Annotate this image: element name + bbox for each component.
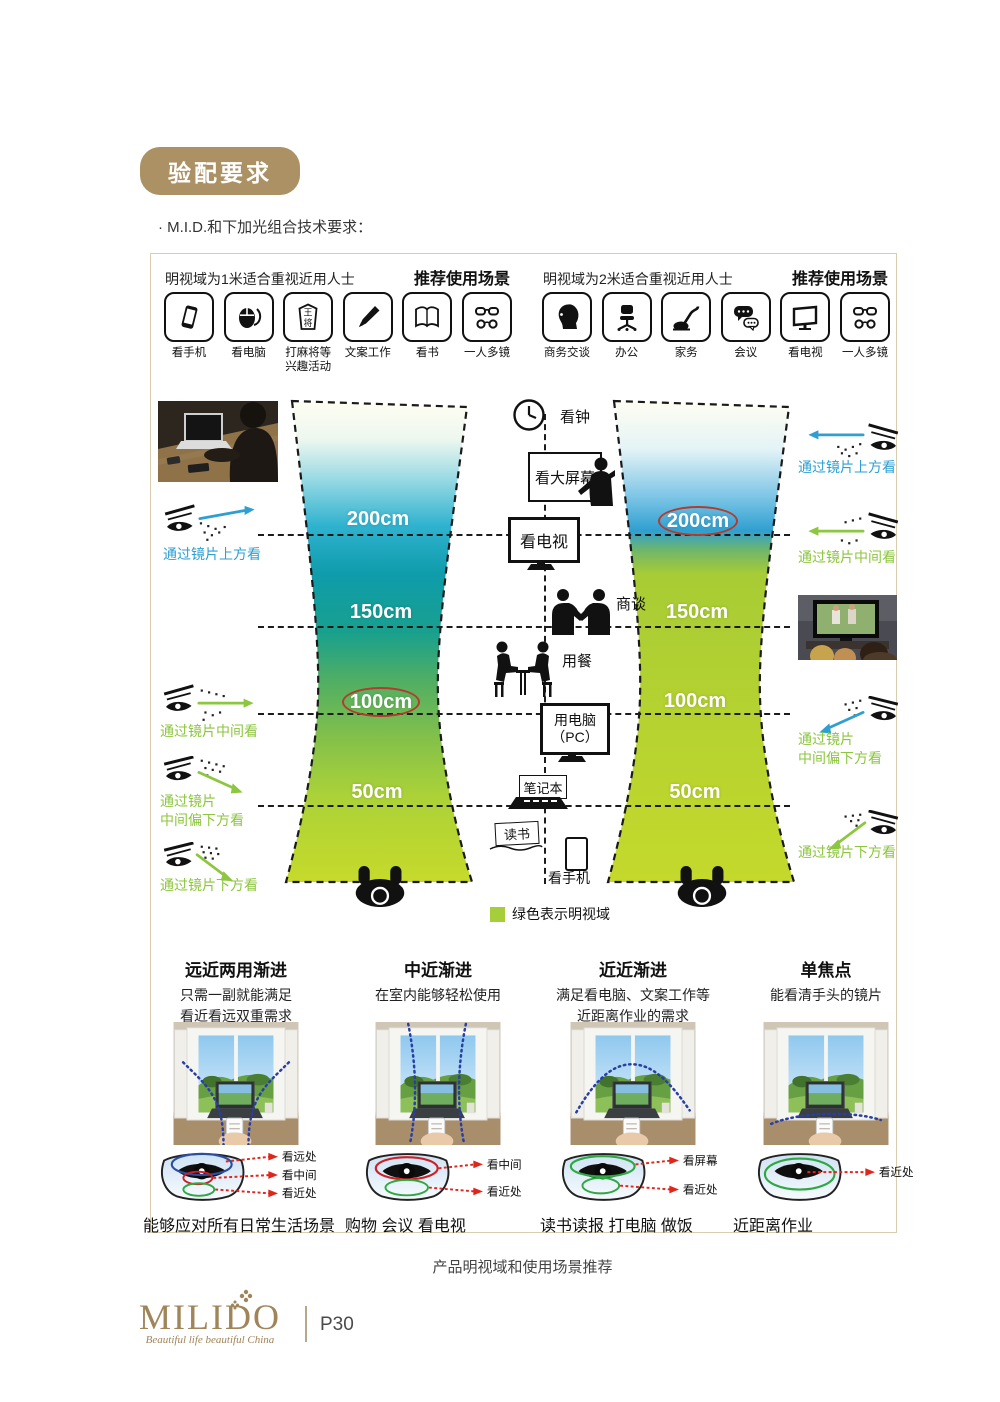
- scenario-label: 文案工作: [341, 346, 395, 360]
- svg-text:看中间: 看中间: [487, 1157, 522, 1171]
- scene-photo-window: [761, 1022, 891, 1145]
- presenter-silhouette: [577, 456, 615, 506]
- left-distance-100cm-highlighted: 100cm: [342, 687, 420, 717]
- view-label-upper-left: 通过镜片上方看: [163, 545, 261, 564]
- laptop-box: 笔记本: [519, 775, 567, 799]
- view-label-mid-lower-left: 通过镜片中间偏下方看: [160, 792, 244, 830]
- chat-bubbles-icon: [731, 302, 761, 332]
- scene-photo-window: [171, 1022, 301, 1145]
- dining-silhouette: [488, 640, 558, 697]
- scenario-label: 看书: [400, 346, 454, 360]
- lens-type-caption: 购物 会议 看电视: [345, 1212, 531, 1236]
- scene-photo-window: [373, 1022, 503, 1145]
- scenario-item: 文案工作: [341, 292, 395, 375]
- right-visual-field-shape: [602, 398, 800, 885]
- book-pages: [488, 843, 544, 853]
- pc-label-line1: 用电脑: [554, 712, 596, 730]
- svg-text:看屏幕: 看屏幕: [683, 1153, 718, 1167]
- panel-left-icons: 看手机 看电脑 王 将 打麻将等兴趣活动 文案工作 看书: [162, 292, 514, 375]
- scenario-item: 看书: [400, 292, 454, 375]
- lens-type-column: 单焦点 能看清手头的镜片: [733, 956, 919, 1027]
- lens-zone-diagram: 看远处 看中间 看近处: [155, 1148, 345, 1204]
- scenario-label: 看手机: [162, 346, 216, 360]
- lens-type-caption: 读书读报 打电脑 做饭: [540, 1212, 726, 1236]
- logo-tagline: Beautiful life beautiful China: [130, 1334, 290, 1346]
- lens-zone-diagram: 看屏幕 看近处: [556, 1148, 746, 1204]
- view-label-lower-right: 通过镜片下方看: [798, 843, 896, 862]
- scenario-label: 办公: [600, 346, 654, 360]
- lens-type-column: 近近渐进 满足看电脑、文案工作等近距离作业的需求: [540, 956, 726, 1027]
- eye-direction-icon: [162, 684, 254, 726]
- glasses-icon: [850, 302, 880, 332]
- scenario-label: 看电脑: [222, 346, 276, 360]
- lens-type-desc: 在室内能够轻松使用: [345, 985, 531, 1027]
- clock-label: 看钟: [560, 406, 590, 427]
- tv-box: 看电视: [508, 517, 580, 563]
- view-label-middle-right: 通过镜片中间看: [798, 548, 896, 567]
- pen-icon: [353, 302, 383, 332]
- pc-label-line2: （PC）: [551, 729, 598, 747]
- lens-type-column: 远近两用渐进 只需一副就能满足看近看远双重需求: [143, 956, 329, 1027]
- negotiation-label: 商谈: [616, 593, 646, 614]
- scenario-item: 商务交谈: [540, 292, 594, 360]
- legend: 绿色表示明视域: [490, 904, 610, 924]
- laptop-work-photo: [158, 401, 278, 482]
- catalog-page: 验配要求 · M.I.D.和下加光组合技术要求： 明视域为1米适合重视近用人士 …: [0, 0, 1000, 1402]
- scenario-label: 商务交谈: [540, 346, 594, 360]
- view-label-lower-left: 通过镜片下方看: [160, 876, 258, 895]
- lens-type-caption: 能够应对所有日常生活场景: [143, 1212, 329, 1236]
- logo-clover-icon: [228, 1288, 258, 1310]
- lens-zone-diagram: 看近处: [752, 1148, 942, 1204]
- pc-stand: [552, 752, 592, 762]
- view-label-mid-lower-right: 通过镜片中间偏下方看: [798, 730, 882, 768]
- lens-type-desc: 只需一副就能满足看近看远双重需求: [143, 985, 329, 1027]
- lens-zone-diagram: 看中间 看近处: [360, 1148, 550, 1204]
- svg-text:王: 王: [304, 308, 313, 318]
- section-subtitle: · M.I.D.和下加光组合技术要求：: [158, 216, 372, 237]
- scenario-label: 家务: [659, 346, 713, 360]
- mahjong-icon: 王 将: [293, 302, 323, 332]
- mouse-icon: [234, 302, 264, 332]
- lens-type-title: 单焦点: [733, 956, 919, 981]
- scenario-item: 会议: [719, 292, 773, 360]
- eye-direction-icon: [163, 504, 255, 546]
- scenario-item: 看电视: [778, 292, 832, 360]
- scenario-item: 一人多镜: [838, 292, 892, 360]
- svg-text:将: 将: [304, 318, 313, 328]
- negotiation-silhouette: [550, 588, 612, 635]
- glasses-icon: [472, 302, 502, 332]
- left-distance-200cm: 200cm: [338, 508, 418, 531]
- viewer-top-silhouette-left: [352, 864, 408, 909]
- tv-label: 看电视: [520, 528, 568, 552]
- smartphone-icon: [565, 837, 588, 871]
- lens-type-title: 远近两用渐进: [143, 956, 329, 981]
- scenario-item: 办公: [600, 292, 654, 360]
- lens-type-desc: 能看清手头的镜片: [733, 985, 919, 1027]
- lens-type-title: 近近渐进: [540, 956, 726, 981]
- legend-green-swatch: [490, 907, 505, 922]
- brand-logo: MILIDO Beautiful life beautiful China: [130, 1296, 290, 1346]
- page-number: P30: [320, 1314, 354, 1336]
- viewer-top-silhouette-right: [674, 864, 730, 909]
- tv-stand: [521, 560, 561, 570]
- phone-view-label: 看手机: [548, 868, 590, 888]
- left-distance-50cm: 50cm: [337, 781, 417, 804]
- scene-photo-window: [568, 1022, 698, 1145]
- scenario-item: 看手机: [162, 292, 216, 375]
- panel-right-title: 明视域为2米适合重视近用人士: [543, 269, 733, 289]
- lens-type-column: 中近渐进 在室内能够轻松使用: [345, 956, 531, 1027]
- scenario-label: 打麻将等兴趣活动: [281, 346, 335, 375]
- scenario-label: 看电视: [778, 346, 832, 360]
- right-distance-200cm-highlighted: 200cm: [658, 506, 738, 536]
- profile-icon: [552, 302, 582, 332]
- section-title-badge: 验配要求: [140, 147, 300, 195]
- scenario-item: 看电脑: [222, 292, 276, 375]
- panel-left-subtitle: 推荐使用场景: [414, 265, 510, 289]
- svg-text:看近处: 看近处: [282, 1186, 317, 1200]
- footer-divider: [305, 1306, 307, 1342]
- phone-icon: [174, 302, 204, 332]
- scenario-item: 一人多镜: [460, 292, 514, 375]
- scenario-item: 家务: [659, 292, 713, 360]
- panel-right-icons: 商务交谈 办公 家务 会议: [540, 292, 892, 360]
- lens-type-title: 中近渐进: [345, 956, 531, 981]
- legend-label: 绿色表示明视域: [512, 904, 610, 924]
- scenario-label: 一人多镜: [838, 346, 892, 360]
- svg-text:看远处: 看远处: [282, 1150, 317, 1164]
- logo-wordmark: MILIDO: [130, 1296, 290, 1338]
- lens-type-desc: 满足看电脑、文案工作等近距离作业的需求: [540, 985, 726, 1027]
- right-distance-100cm: 100cm: [655, 690, 735, 713]
- dining-label: 用餐: [562, 650, 592, 671]
- panel-left-title: 明视域为1米适合重视近用人士: [165, 269, 355, 289]
- svg-text:看近处: 看近处: [683, 1182, 718, 1196]
- office-chair-icon: [612, 302, 642, 332]
- clock-icon: [512, 398, 546, 432]
- pc-box: 用电脑 （PC）: [540, 703, 610, 755]
- scenario-label: 一人多镜: [460, 346, 514, 360]
- laptop-keyboard: [506, 797, 570, 812]
- laptop-label: 笔记本: [523, 778, 562, 797]
- svg-text:看近处: 看近处: [487, 1184, 522, 1198]
- panel-right-subtitle: 推荐使用场景: [792, 265, 888, 289]
- right-distance-50cm: 50cm: [655, 781, 735, 804]
- svg-text:看中间: 看中间: [282, 1168, 317, 1182]
- book-icon: [412, 302, 442, 332]
- distance-line-100cm: [258, 713, 790, 715]
- left-visual-field-shape: [280, 398, 478, 885]
- scenario-item: 王 将 打麻将等兴趣活动: [281, 292, 335, 375]
- family-tv-photo: [798, 595, 897, 660]
- view-label-upper-right: 通过镜片上方看: [798, 458, 896, 477]
- right-distance-150cm: 150cm: [657, 601, 737, 624]
- lens-type-caption: 近距离作业: [733, 1212, 919, 1236]
- svg-text:看近处: 看近处: [879, 1165, 914, 1179]
- tv-icon: [790, 302, 820, 332]
- distance-line-150cm: [258, 626, 790, 628]
- left-distance-150cm: 150cm: [341, 601, 421, 624]
- panel-right-header: 明视域为2米适合重视近用人士 推荐使用场景: [543, 265, 888, 289]
- figure-caption: 产品明视域和使用场景推荐: [150, 1256, 895, 1277]
- reading-label: 读书: [504, 823, 531, 843]
- vacuum-icon: [671, 302, 701, 332]
- view-label-middle-left: 通过镜片中间看: [160, 722, 258, 741]
- panel-left-header: 明视域为1米适合重视近用人士 推荐使用场景: [165, 265, 510, 289]
- scenario-label: 会议: [719, 346, 773, 360]
